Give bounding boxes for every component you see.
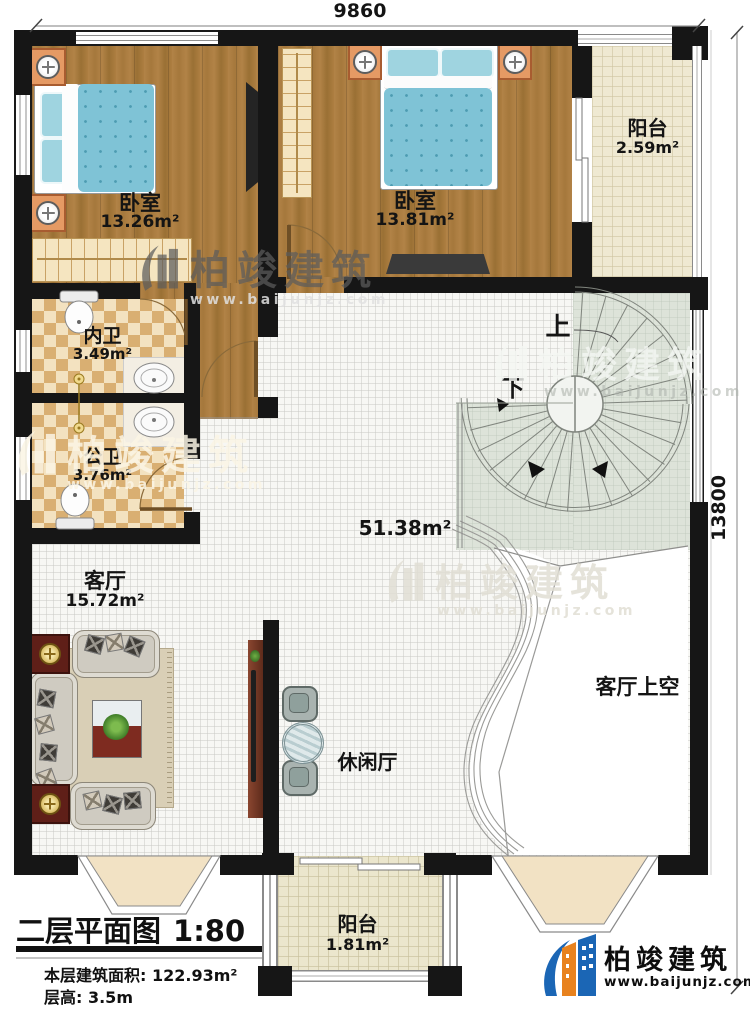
pillar-balc-bl xyxy=(258,966,292,996)
wall-bottom-3 xyxy=(456,855,492,875)
brand-logo-icon xyxy=(540,934,600,998)
balcony-top-area: 2.59m² xyxy=(600,140,695,157)
bedroom1-area: 13.26m² xyxy=(90,214,190,232)
balcony-bottom-area: 1.81m² xyxy=(315,937,400,954)
pillar-balc-br xyxy=(428,966,462,996)
leisure-hall-label: 休闲厅 xyxy=(325,752,410,773)
dimension-top: 9860 xyxy=(320,2,400,22)
bedroom1-wardrobe xyxy=(32,238,192,282)
sofa-pillow xyxy=(123,791,142,810)
bed2-pillow-1 xyxy=(386,48,440,78)
title-underline xyxy=(16,946,262,952)
stair-up-label: 上 xyxy=(542,314,574,340)
stair-floor-upper xyxy=(573,293,690,550)
pillar-balc-tr xyxy=(424,853,456,875)
nightstand-4 xyxy=(498,44,532,80)
wall-top-2 xyxy=(218,30,578,46)
plan-title: 二层平面图 xyxy=(16,908,161,950)
stair-down-label: 下 xyxy=(498,377,528,401)
bed2-blanket xyxy=(384,88,492,186)
partition-cabinet xyxy=(248,640,263,818)
lamp-icon xyxy=(503,50,527,74)
public-bath-area: 3.76m² xyxy=(55,468,150,484)
pillar-top-right xyxy=(672,26,708,60)
sofa-pillow xyxy=(39,743,58,762)
nightstand-1 xyxy=(30,48,66,86)
gold-lamp-icon xyxy=(39,793,61,815)
wall-bath-east-1 xyxy=(184,299,200,459)
tv-cabinet-bedroom2 xyxy=(386,254,490,274)
wall-bedroom1-bottom-2 xyxy=(184,283,196,299)
wall-bath-divider xyxy=(32,393,200,403)
wall-left-3 xyxy=(14,372,32,437)
nightstand-3 xyxy=(348,44,382,80)
tv-partition xyxy=(251,670,256,782)
inner-bath-label: 内卫 xyxy=(55,327,150,347)
leisure-chair-1 xyxy=(282,686,318,722)
bed2-pillow-2 xyxy=(440,48,494,78)
lamp-icon xyxy=(36,55,60,79)
hall-area: 51.38m² xyxy=(340,518,470,539)
nightstand-2 xyxy=(30,194,66,232)
leisure-glass-table xyxy=(282,722,324,764)
living-room-label: 客厅 xyxy=(55,570,155,592)
balcony-top-label: 阳台 xyxy=(600,118,695,139)
inner-bath-area: 3.49m² xyxy=(55,347,150,363)
wall-bedroom1-bottom-1 xyxy=(32,283,140,299)
balcony-bottom-rail-s xyxy=(278,970,442,982)
bedroom2-door-threshold xyxy=(286,277,344,293)
wall-bottom-2 xyxy=(220,855,268,875)
floor-height-line: 层高: 3.5m xyxy=(44,984,133,1008)
bed1-blanket xyxy=(78,84,154,192)
window-left-3 xyxy=(14,437,32,500)
lamp-icon xyxy=(36,201,60,225)
living-room-area: 15.72m² xyxy=(55,593,155,611)
wardrobe-rod xyxy=(296,53,298,193)
window-right xyxy=(692,310,704,502)
pillar-balc-tl xyxy=(262,853,294,875)
balcony-bottom-rail-e xyxy=(442,875,458,970)
bedroom1-label: 卧室 xyxy=(90,192,190,214)
wall-right-2 xyxy=(690,502,708,875)
public-bath-vanity xyxy=(123,399,186,447)
side-table-2 xyxy=(30,784,70,824)
wall-left-4 xyxy=(14,500,32,875)
wall-bedroom2-bottom-1 xyxy=(278,277,286,293)
window-left-2 xyxy=(14,330,32,372)
corridor-floor xyxy=(196,283,258,419)
lamp-icon xyxy=(353,50,377,74)
wall-bottom-1 xyxy=(14,855,78,875)
wall-bath-bottom xyxy=(14,528,200,544)
wall-left-1 xyxy=(14,30,32,95)
wall-bath-east-2 xyxy=(184,512,200,528)
wall-left-2 xyxy=(14,175,32,330)
window-left-1 xyxy=(14,95,32,175)
floor-area-line: 本层建筑面积: 122.93m² xyxy=(44,962,237,986)
plant-coffee-table xyxy=(103,714,129,740)
bedroom2-area: 13.81m² xyxy=(365,212,465,230)
wall-balcony-top-2 xyxy=(572,222,592,293)
leisure-chair-2 xyxy=(282,760,318,796)
public-bath-label: 公卫 xyxy=(55,448,150,468)
bedroom2-wardrobe xyxy=(282,48,312,198)
wall-divider-bedrooms xyxy=(258,46,278,337)
bedroom2-label: 卧室 xyxy=(365,190,465,212)
rug-fringe xyxy=(167,651,172,803)
sofa-pillow xyxy=(37,689,57,709)
gold-lamp-icon xyxy=(39,643,61,665)
floor-plan: 9860 13800 卧室 13.26m² 卧室 13.81m² 阳台 2.59… xyxy=(0,0,750,1010)
wall-corridor-end xyxy=(258,397,278,418)
plan-scale: 1:80 xyxy=(173,914,245,948)
title-block: 二层平面图 1:80 xyxy=(16,908,276,950)
sofa-pillow xyxy=(105,633,125,653)
brand-name: 柏竣建筑 xyxy=(604,938,746,977)
title-underline-thin xyxy=(16,957,262,959)
balcony-top-rail-e xyxy=(692,46,702,286)
tv-bedroom1 xyxy=(246,82,258,192)
balcony-top-floor xyxy=(592,46,694,286)
balcony-bottom-label: 阳台 xyxy=(315,914,400,935)
wall-partition xyxy=(263,620,279,855)
dimension-right: 13800 xyxy=(710,468,730,548)
wall-balcony-top-1 xyxy=(572,46,592,98)
wall-bedroom2-bottom-2 xyxy=(344,277,708,293)
wall-bottom-4 xyxy=(658,855,708,875)
wardrobe-rod xyxy=(37,258,187,260)
stair-floor-lower xyxy=(456,403,573,550)
window-top xyxy=(76,30,218,46)
plant-cabinet xyxy=(250,650,260,662)
living-void-label: 客厅上空 xyxy=(585,676,690,698)
side-table-1 xyxy=(30,634,70,674)
brand-website: www.baijunjz.com xyxy=(604,974,746,990)
sofa-pillow xyxy=(82,790,102,810)
